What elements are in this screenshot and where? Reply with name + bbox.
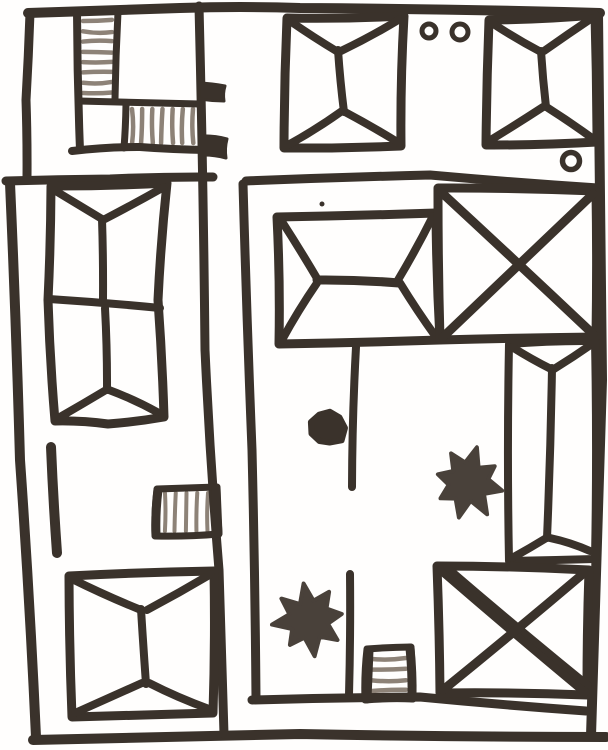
building-left-hip-nw — [54, 190, 102, 219]
building-right-hip-nw — [512, 347, 551, 369]
building-top-middle-hip-ne — [341, 19, 400, 51]
star-marker-bottom — [272, 584, 342, 657]
building-top-middle-hip-sw — [288, 111, 342, 145]
stairs-vertical-treads-5 — [83, 62, 112, 63]
stairs-bottom-edge-right — [410, 648, 412, 698]
star-marker-right — [438, 447, 502, 517]
stairs-horizontal-treads-3 — [152, 109, 153, 143]
stairs-left-treads-2 — [174, 493, 175, 531]
street-tab-lower — [201, 136, 227, 158]
left-section-top-wall — [6, 177, 213, 181]
street-tab-upper — [199, 83, 225, 101]
stairs-vertical-treads-4 — [83, 52, 112, 53]
building-center-hip-nw — [281, 220, 318, 280]
hand-drawn-map-sketch — [0, 0, 608, 750]
building-left-ridge-lower — [105, 308, 107, 390]
stairs-bottom-edge-left — [367, 650, 369, 699]
stairs-horizontal-treads-6 — [182, 109, 183, 143]
stairs-box-left-wall — [124, 104, 126, 148]
building-top-middle-ridge — [338, 50, 344, 112]
building-top-middle-hip-se — [345, 112, 399, 143]
dot-speck — [320, 202, 325, 207]
building-bottom-left-hip-se — [149, 683, 209, 709]
building-top-right-hip-ne — [544, 18, 592, 51]
dot-marker-large — [311, 412, 345, 443]
stairs-vertical-treads-7 — [83, 82, 112, 84]
stairs-vertical-treads-6 — [83, 72, 112, 73]
courtyard-bottom-wall — [252, 697, 586, 711]
stairs-block-bottom-wall — [72, 147, 207, 151]
courtyard-inner-wall-lower — [349, 574, 350, 695]
stairs-strip-bottom-wall — [79, 101, 200, 104]
building-center-hip-ne — [398, 216, 433, 280]
stairs-bottom-treads-2 — [372, 669, 406, 670]
stairs-vertical-treads-8 — [83, 92, 112, 93]
stairs-horizontal-treads-5 — [172, 109, 173, 143]
small-circle-b — [452, 24, 468, 40]
courtyard-inner-wall-upper — [352, 347, 356, 487]
building-top-right-hip-nw — [492, 23, 541, 52]
building-bottom-left-hip-ne — [147, 574, 211, 610]
building-left-hip-sw — [60, 390, 106, 417]
courtyard-left-wall — [243, 184, 256, 698]
wall-fragment — [51, 447, 57, 553]
building-top-right-hip-se — [548, 108, 592, 138]
stairs-block-left-wall — [77, 12, 80, 150]
stairs-horizontal-treads-7 — [192, 109, 193, 143]
building-bottom-left-ridge — [141, 609, 146, 684]
building-center-hip-se — [400, 283, 436, 337]
building-right-hip-ne — [554, 344, 592, 369]
stairs-left-treads-3 — [186, 493, 187, 531]
building-left-ridge-upper — [102, 219, 103, 299]
stairs-vertical-treads-3 — [83, 41, 112, 42]
stairs-left-treads-1 — [165, 493, 166, 531]
stairs-bottom-treads-1 — [372, 658, 406, 660]
building-right-hip-sw — [512, 537, 548, 558]
building-right-ridge — [547, 368, 552, 538]
stairs-horizontal-treads-1 — [132, 109, 133, 143]
stairs-left-edge-left — [156, 490, 158, 535]
building-top-middle-hip-nw — [290, 21, 338, 52]
small-circle-c — [563, 153, 580, 170]
building-top-right-hip-sw — [489, 107, 543, 141]
border-top-left-vertical — [26, 13, 30, 178]
stairs-horizontal-treads-4 — [161, 109, 162, 143]
stairs-left-treads-4 — [196, 493, 197, 531]
border-bottom — [33, 734, 606, 740]
stairs-bottom-treads-3 — [372, 680, 406, 681]
building-top-right-ridge — [541, 51, 546, 107]
stairs-bottom-treads-4 — [372, 690, 406, 691]
stairs-vertical-treads-1 — [83, 20, 112, 21]
border-top — [28, 7, 600, 13]
stairs-strip-right-wall — [115, 12, 118, 99]
small-circle-a — [422, 24, 436, 38]
building-left-hip-ne — [105, 187, 164, 219]
building-bottom-left-hip-nw — [72, 579, 141, 610]
paper-page — [0, 0, 608, 750]
border-left — [10, 183, 36, 737]
building-bottom-left-hip-sw — [75, 683, 142, 713]
stairs-left-edge-right — [216, 488, 218, 533]
stairs-vertical-treads-2 — [83, 31, 112, 33]
building-center-hip-sw — [282, 283, 317, 340]
building-center-ridge — [317, 280, 399, 283]
stairs-left-treads-5 — [207, 493, 208, 531]
building-right-hip-se — [550, 538, 590, 551]
stairs-horizontal-treads-2 — [141, 109, 142, 143]
building-left-hip-se — [109, 390, 157, 412]
